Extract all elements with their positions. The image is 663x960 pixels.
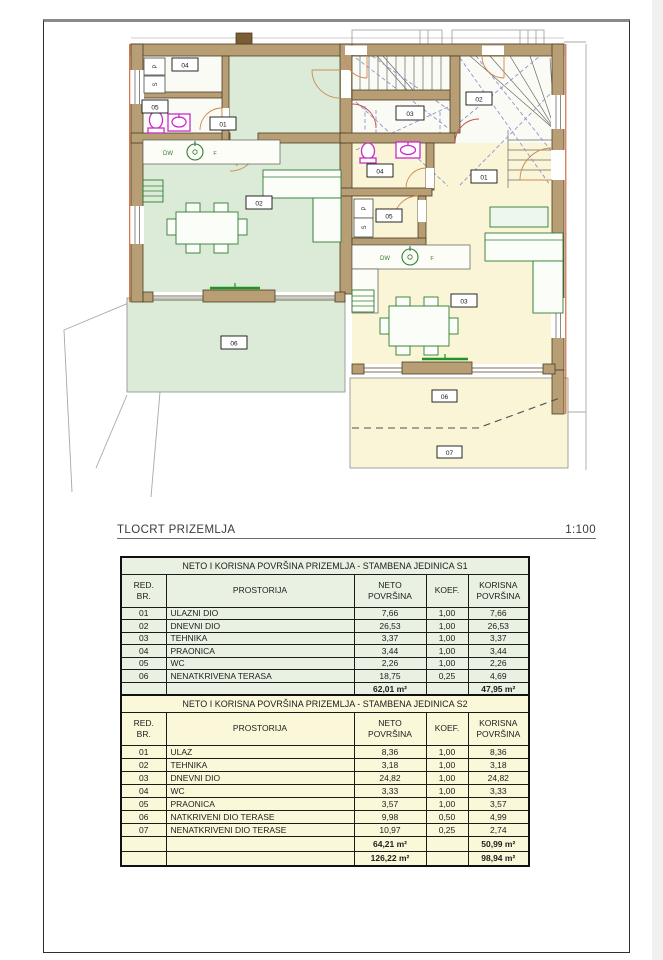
koef-value: 1,00 <box>426 745 468 758</box>
koef-value: 1,00 <box>426 607 468 620</box>
koef-value: 1,00 <box>426 632 468 645</box>
grandtotal-korisna: 98,94 m² <box>468 851 529 866</box>
korisna-value: 3,44 <box>468 645 529 658</box>
dining-table-unit2 <box>380 297 458 355</box>
row-number: 02 <box>121 620 166 633</box>
korisna-value: 8,36 <box>468 745 529 758</box>
room-label: 05 <box>142 100 168 113</box>
svg-text:04: 04 <box>181 63 189 70</box>
svg-text:02: 02 <box>255 201 263 208</box>
washer-label: P <box>153 64 159 68</box>
table-header-row: RED.BR. PROSTORIJA NETOPOVRŠINA KOEF. KO… <box>121 712 529 745</box>
room-name: ULAZNI DIO <box>166 607 354 620</box>
table-row: 04 PRAONICA 3,44 1,00 3,44 <box>121 645 529 658</box>
table-row: 01 ULAZNI DIO 7,66 1,00 7,66 <box>121 607 529 620</box>
sideboard-unit2 <box>490 207 548 227</box>
room-name: PRAONICA <box>166 645 354 658</box>
table-row: 06 NENATKRIVENA TERASA 18,75 0,25 4,69 <box>121 670 529 683</box>
neto-value: 3,57 <box>354 797 426 810</box>
chimney <box>236 33 252 44</box>
korisna-value: 3,57 <box>468 797 529 810</box>
room-label: 04 <box>172 58 198 71</box>
table-row: 05 PRAONICA 3,57 1,00 3,57 <box>121 797 529 810</box>
korisna-value: 7,66 <box>468 607 529 620</box>
korisna-value: 3,37 <box>468 632 529 645</box>
room-name: PRAONICA <box>166 797 354 810</box>
room-name: NENATKRIVENI DIO TERASE <box>166 823 354 836</box>
row-number: 02 <box>121 758 166 771</box>
row-number: 06 <box>121 670 166 683</box>
svg-text:05: 05 <box>385 214 393 221</box>
koef-value: 1,00 <box>426 657 468 670</box>
room-label: 06 <box>221 336 247 349</box>
room-name: TEHNIKA <box>166 632 354 645</box>
neto-value: 18,75 <box>354 670 426 683</box>
koef-value: 1,00 <box>426 771 468 784</box>
koef-value: 1,00 <box>426 645 468 658</box>
row-number: 01 <box>121 607 166 620</box>
room-label: 01 <box>471 170 497 183</box>
row-number: 03 <box>121 771 166 784</box>
neto-value: 9,98 <box>354 810 426 823</box>
table-row: 02 TEHNIKA 3,18 1,00 3,18 <box>121 758 529 771</box>
korisna-value: 4,69 <box>468 670 529 683</box>
table-title: NETO I KORISNA POVRŠINA PRIZEMLJA - STAM… <box>121 695 529 712</box>
subtotal-korisna: 50,99 m² <box>468 836 529 851</box>
table-row: 01 ULAZ 8,36 1,00 8,36 <box>121 745 529 758</box>
neto-value: 7,66 <box>354 607 426 620</box>
table-row: 06 NATKRIVENI DIO TERASE 9,98 0,50 4,99 <box>121 810 529 823</box>
table-row: 04 WC 3,33 1,00 3,33 <box>121 784 529 797</box>
room-name: DNEVNI DIO <box>166 620 354 633</box>
koef-value: 0,25 <box>426 670 468 683</box>
row-number: 01 <box>121 745 166 758</box>
koef-value: 1,00 <box>426 620 468 633</box>
dryer-label: S <box>153 82 159 86</box>
header-koef: KOEF. <box>426 712 468 745</box>
table-subtotal-row: 64,21 m² 50,99 m² <box>121 836 529 851</box>
koef-value: 0,25 <box>426 823 468 836</box>
row-number: 04 <box>121 645 166 658</box>
sink-icon <box>168 114 190 131</box>
header-neto: NETOPOVRŠINA <box>354 574 426 607</box>
table-row: 03 DNEVNI DIO 24,82 1,00 24,82 <box>121 771 529 784</box>
korisna-value: 3,18 <box>468 758 529 771</box>
neto-value: 3,44 <box>354 645 426 658</box>
room-name: DNEVNI DIO <box>166 771 354 784</box>
grandtotal-neto: 126,22 m² <box>354 851 426 866</box>
washer-dryer-unit2: P S <box>354 199 373 237</box>
sink-icon <box>396 142 420 158</box>
toilet-icon <box>148 112 164 134</box>
table-row: 07 NENATKRIVENI DIO TERASE 10,97 0,25 2,… <box>121 823 529 836</box>
room-name: WC <box>166 657 354 670</box>
header-prostorija: PROSTORIJA <box>166 712 354 745</box>
table-row: 03 TEHNIKA 3,37 1,00 3,37 <box>121 632 529 645</box>
row-number: 06 <box>121 810 166 823</box>
neto-value: 10,97 <box>354 823 426 836</box>
table-title: NETO I KORISNA POVRŠINA PRIZEMLJA - STAM… <box>121 557 529 574</box>
room-label: 03 <box>451 294 477 307</box>
header-korisna: KORISNAPOVRŠINA <box>468 712 529 745</box>
room-name: TEHNIKA <box>166 758 354 771</box>
page-title: TLOCRT PRIZEMLJA <box>117 524 235 536</box>
neto-value: 3,33 <box>354 784 426 797</box>
room-label: 01 <box>210 117 236 130</box>
koef-value: 1,00 <box>426 784 468 797</box>
room-label: 05 <box>376 209 402 222</box>
row-number: 05 <box>121 797 166 810</box>
room-name: WC <box>166 784 354 797</box>
dw-label: DW <box>380 256 390 262</box>
koef-value: 1,00 <box>426 758 468 771</box>
toilet-icon <box>360 143 376 163</box>
table-grandtotal-row: 126,22 m² 98,94 m² <box>121 851 529 866</box>
korisna-value: 3,33 <box>468 784 529 797</box>
korisna-value: 2,26 <box>468 657 529 670</box>
header-koef: KOEF. <box>426 574 468 607</box>
svg-text:07: 07 <box>446 450 454 457</box>
room-label: 02 <box>246 196 272 209</box>
header-neto: NETOPOVRŠINA <box>354 712 426 745</box>
drawing-scale: 1:100 <box>565 524 596 536</box>
header-red-br: RED.BR. <box>121 712 166 745</box>
row-number: 05 <box>121 657 166 670</box>
header-prostorija: PROSTORIJA <box>166 574 354 607</box>
dryer-label: S <box>362 225 368 229</box>
row-number: 03 <box>121 632 166 645</box>
svg-text:06: 06 <box>441 394 449 401</box>
header-korisna: KORISNAPOVRŠINA <box>468 574 529 607</box>
room-label: 04 <box>367 164 393 177</box>
svg-text:01: 01 <box>480 175 488 182</box>
row-number: 04 <box>121 784 166 797</box>
neto-value: 8,36 <box>354 745 426 758</box>
areas-table-s1: NETO I KORISNA POVRŠINA PRIZEMLJA - STAM… <box>120 556 530 697</box>
drawing-title-row: TLOCRT PRIZEMLJA 1:100 <box>117 519 596 539</box>
korisna-value: 26,53 <box>468 620 529 633</box>
subtotal-neto: 64,21 m² <box>354 836 426 851</box>
svg-text:04: 04 <box>376 169 384 176</box>
table-header-row: RED.BR. PROSTORIJA NETOPOVRŠINA KOEF. KO… <box>121 574 529 607</box>
svg-text:03: 03 <box>460 299 468 306</box>
table-row: 05 WC 2,26 1,00 2,26 <box>121 657 529 670</box>
table-title-row: NETO I KORISNA POVRŠINA PRIZEMLJA - STAM… <box>121 695 529 712</box>
dw-label: DW <box>163 151 173 157</box>
room-label: 06 <box>432 390 457 402</box>
svg-text:02: 02 <box>475 97 483 104</box>
neto-value: 26,53 <box>354 620 426 633</box>
svg-text:05: 05 <box>151 105 159 112</box>
neto-value: 24,82 <box>354 771 426 784</box>
floor-plan: DW F DW F <box>0 0 663 500</box>
header-red-br: RED.BR. <box>121 574 166 607</box>
korisna-value: 24,82 <box>468 771 529 784</box>
svg-text:03: 03 <box>406 111 414 118</box>
room-label: 02 <box>466 92 492 105</box>
table-row: 02 DNEVNI DIO 26,53 1,00 26,53 <box>121 620 529 633</box>
koef-value: 1,00 <box>426 797 468 810</box>
washer-label: P <box>362 206 368 210</box>
room-name: NATKRIVENI DIO TERASE <box>166 810 354 823</box>
drawing-sheet: DW F DW F <box>0 0 663 960</box>
room-label: 07 <box>437 446 462 458</box>
neto-value: 2,26 <box>354 657 426 670</box>
table-title-row: NETO I KORISNA POVRŠINA PRIZEMLJA - STAM… <box>121 557 529 574</box>
svg-text:06: 06 <box>230 341 238 348</box>
room-name: ULAZ <box>166 745 354 758</box>
room-name: NENATKRIVENA TERASA <box>166 670 354 683</box>
neto-value: 3,37 <box>354 632 426 645</box>
room-label: 03 <box>396 106 424 120</box>
svg-text:01: 01 <box>219 122 227 129</box>
korisna-value: 4,99 <box>468 810 529 823</box>
neto-value: 3,18 <box>354 758 426 771</box>
row-number: 07 <box>121 823 166 836</box>
areas-table-s2: NETO I KORISNA POVRŠINA PRIZEMLJA - STAM… <box>120 694 530 867</box>
koef-value: 0,50 <box>426 810 468 823</box>
korisna-value: 2,74 <box>468 823 529 836</box>
